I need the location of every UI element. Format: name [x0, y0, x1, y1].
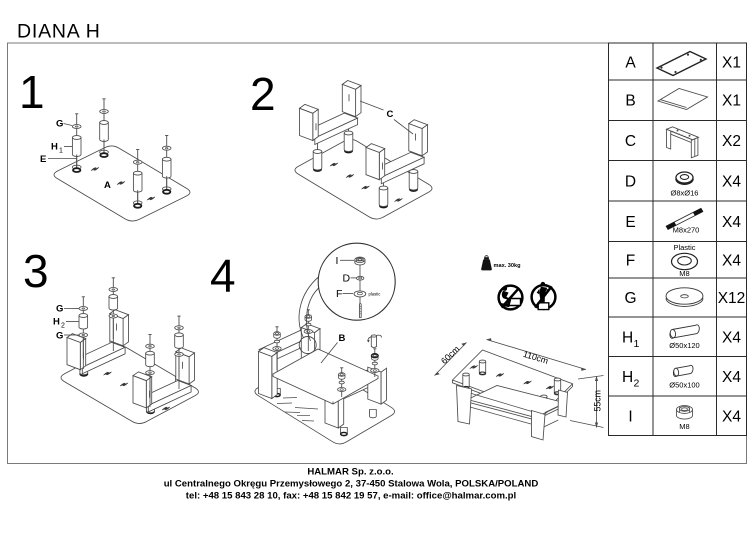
svg-text:Ø8xØ16: Ø8xØ16	[671, 189, 699, 198]
svg-text:H: H	[51, 142, 58, 153]
svg-text:Ø50x120: Ø50x120	[669, 341, 699, 350]
svg-text:X4: X4	[722, 369, 741, 386]
svg-text:M8: M8	[679, 269, 689, 278]
svg-text:3: 3	[23, 245, 49, 297]
svg-text:G: G	[624, 290, 636, 307]
svg-text:HALMAR Sp. z.o.o.: HALMAR Sp. z.o.o.	[307, 467, 393, 478]
svg-text:I: I	[628, 408, 632, 425]
svg-text:tel: +48 15 843 28 10, fax: +4: tel: +48 15 843 28 10, fax: +48 15 842 1…	[186, 491, 516, 502]
svg-text:E: E	[40, 154, 46, 165]
svg-text:Plastic: Plastic	[673, 243, 695, 252]
svg-text:D: D	[625, 173, 636, 190]
svg-text:X4: X4	[722, 214, 741, 231]
svg-text:B: B	[339, 333, 346, 344]
svg-text:H: H	[622, 369, 633, 386]
svg-text:B: B	[625, 93, 635, 110]
svg-text:2: 2	[61, 323, 65, 330]
svg-text:X4: X4	[722, 173, 741, 190]
svg-text:1: 1	[59, 148, 63, 155]
svg-text:X4: X4	[722, 252, 741, 269]
svg-text:55cm: 55cm	[593, 390, 603, 412]
svg-text:X4: X4	[722, 408, 741, 425]
svg-text:2: 2	[250, 68, 276, 120]
svg-text:plastic: plastic	[369, 292, 381, 297]
svg-text:A: A	[104, 180, 111, 191]
svg-text:D: D	[343, 273, 351, 285]
svg-text:M8x270: M8x270	[673, 226, 700, 235]
svg-text:1: 1	[19, 66, 45, 118]
svg-text:F: F	[336, 288, 342, 300]
svg-text:4: 4	[210, 250, 236, 302]
svg-text:X12: X12	[718, 290, 746, 307]
svg-text:X1: X1	[722, 55, 741, 72]
svg-text:X4: X4	[722, 329, 741, 346]
svg-text:C: C	[387, 109, 394, 120]
svg-text:H: H	[53, 317, 60, 328]
svg-text:X1: X1	[722, 93, 741, 110]
svg-text:E: E	[625, 214, 635, 231]
svg-text:X2: X2	[722, 133, 741, 150]
svg-text:C: C	[625, 133, 636, 150]
svg-text:ul Centralnego Okręgu Przemysł: ul Centralnego Okręgu Przemysłowego 2, 3…	[164, 479, 539, 490]
svg-text:G: G	[56, 331, 63, 342]
svg-text:DIANA H: DIANA H	[17, 21, 101, 43]
svg-text:G: G	[56, 119, 63, 130]
svg-text:H: H	[622, 329, 633, 346]
svg-text:A: A	[625, 55, 636, 72]
svg-text:M8: M8	[679, 422, 689, 431]
svg-text:max. 30kg: max. 30kg	[494, 263, 522, 269]
svg-text:2: 2	[634, 377, 640, 389]
svg-text:1: 1	[634, 338, 640, 350]
svg-text:Ø50x100: Ø50x100	[669, 381, 699, 390]
svg-text:F: F	[626, 252, 635, 269]
svg-text:I: I	[336, 255, 339, 267]
svg-text:G: G	[56, 304, 63, 315]
